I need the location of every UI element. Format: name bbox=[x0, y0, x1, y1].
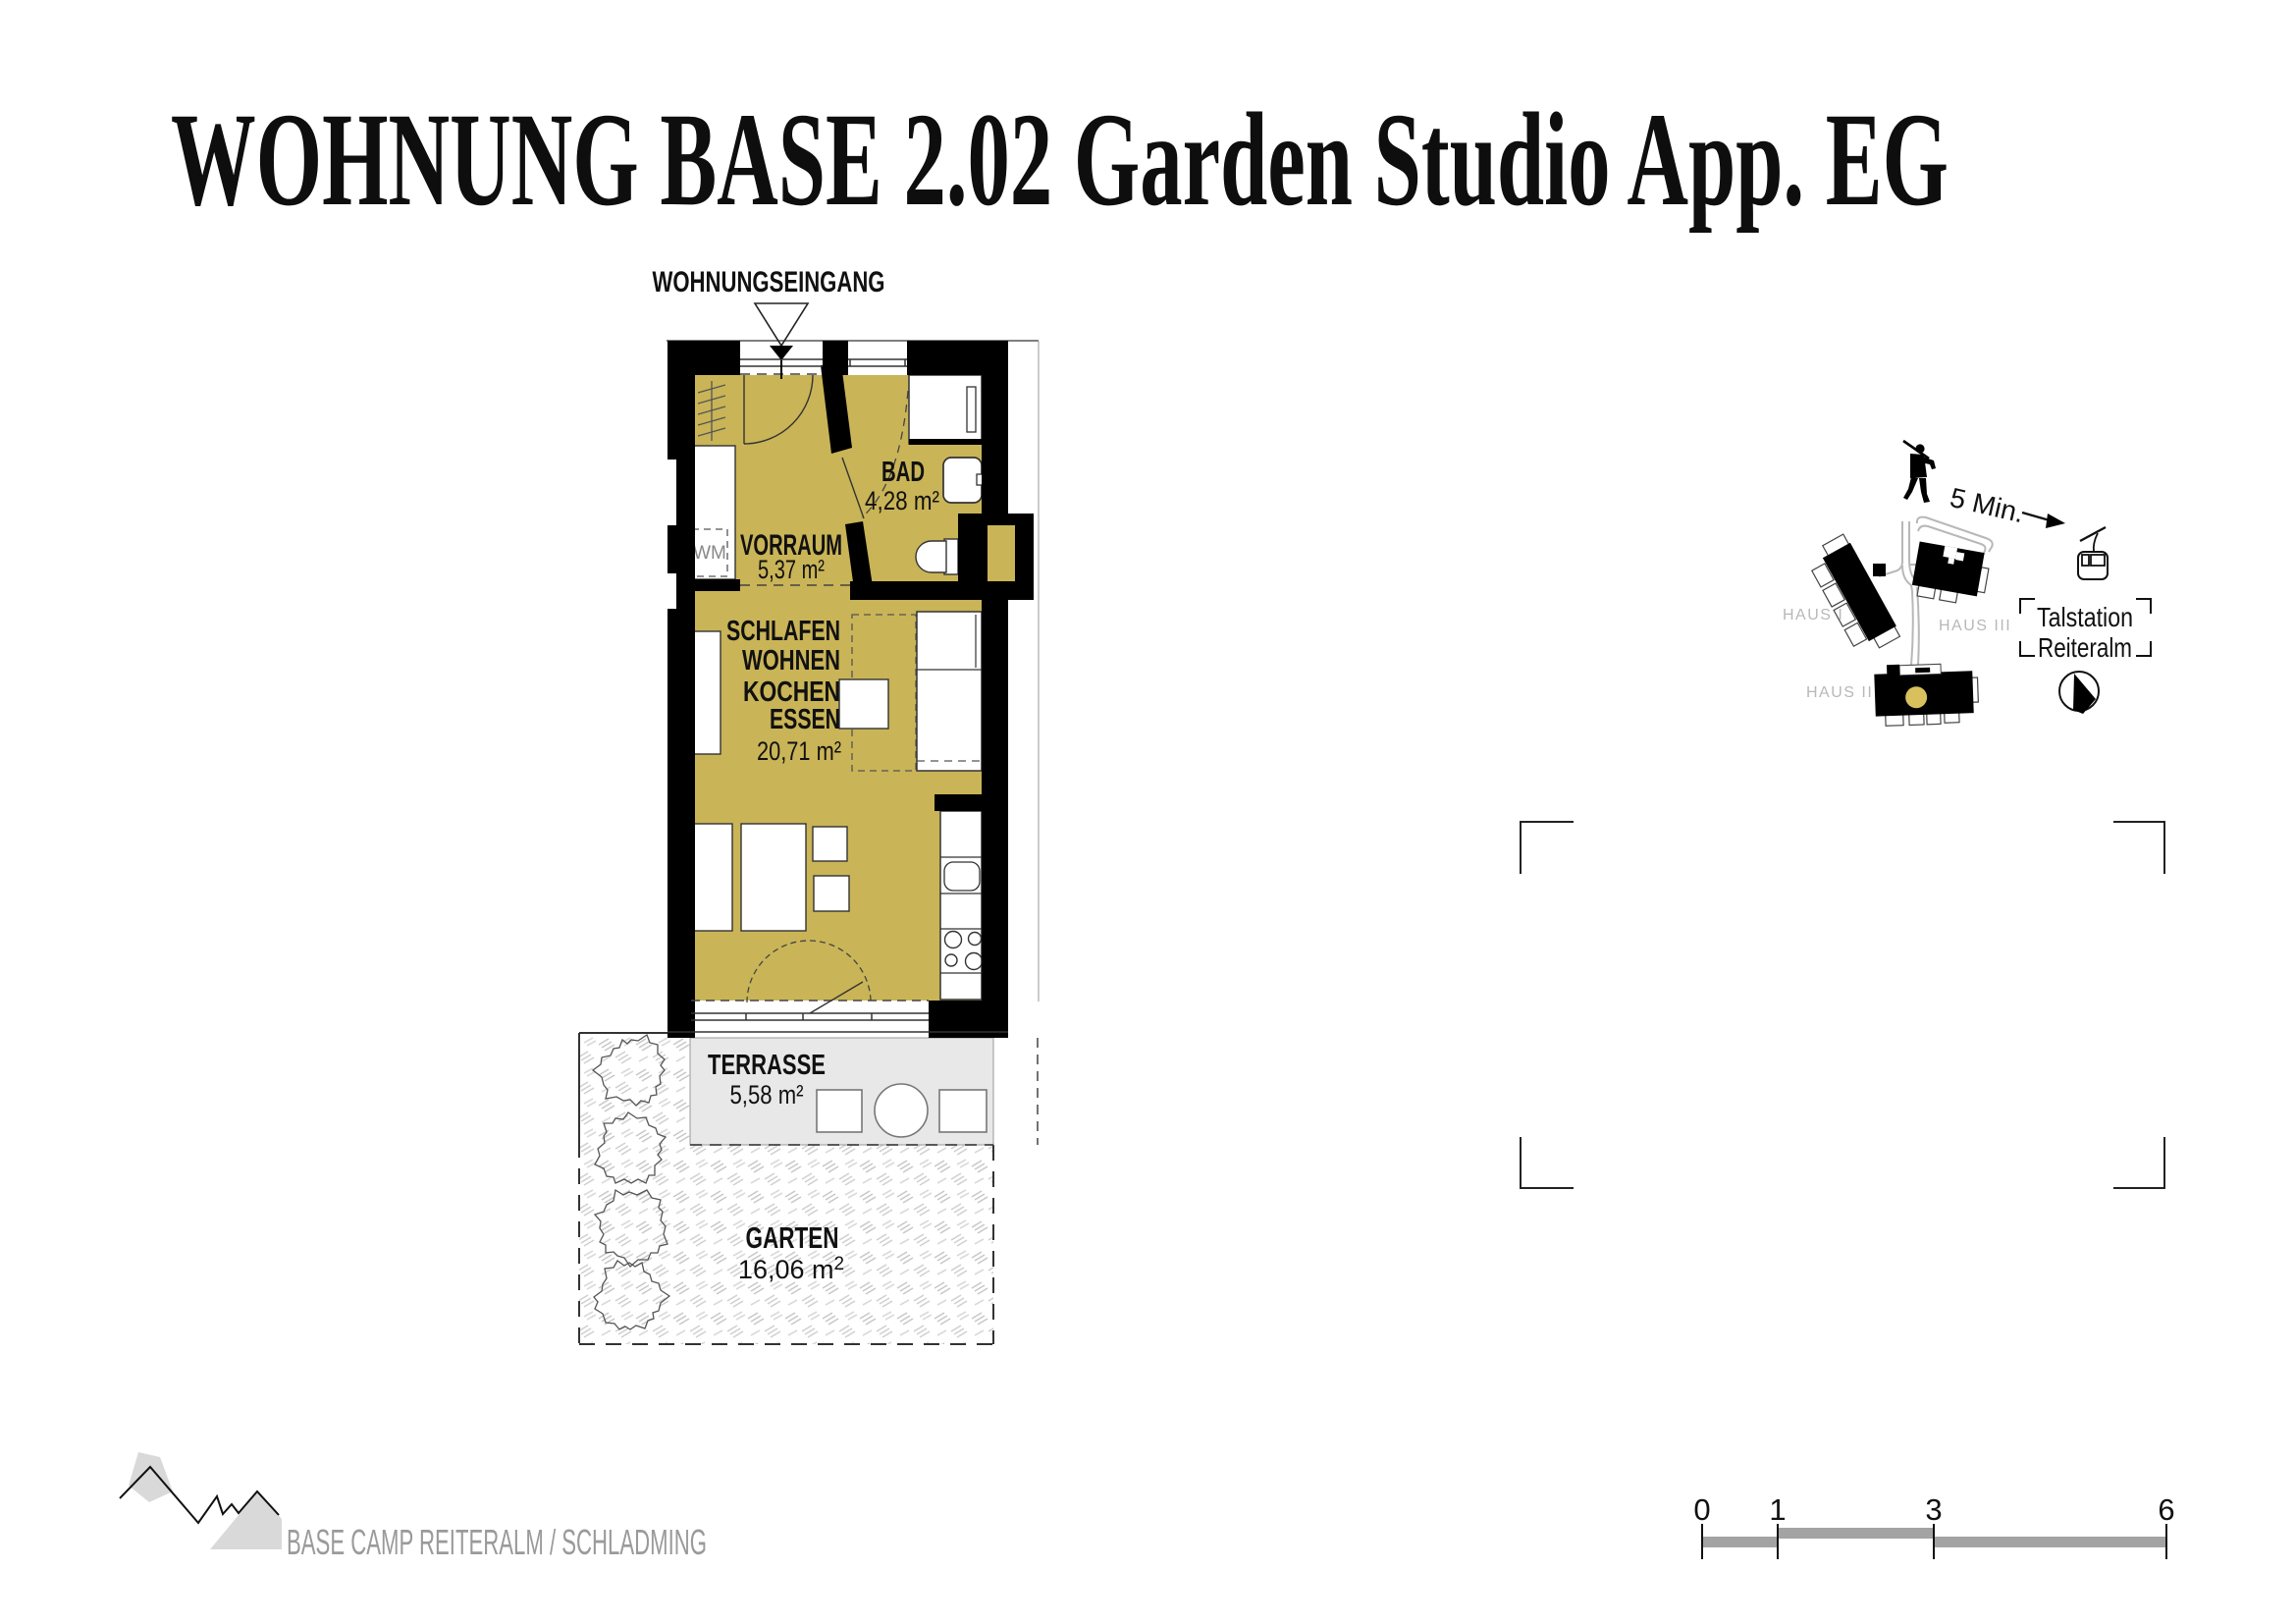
svg-text:20,71 m²: 20,71 m² bbox=[757, 736, 841, 766]
svg-text:Talstation: Talstation bbox=[2037, 602, 2133, 632]
svg-text:WOHNEN: WOHNEN bbox=[742, 645, 840, 677]
svg-text:SCHLAFEN: SCHLAFEN bbox=[726, 616, 840, 647]
svg-text:1: 1 bbox=[1769, 1492, 1786, 1527]
svg-text:5,58 m²: 5,58 m² bbox=[730, 1080, 804, 1110]
svg-text:BAD: BAD bbox=[881, 457, 925, 488]
svg-text:4,28 m²: 4,28 m² bbox=[865, 486, 939, 515]
svg-text:HAUS II: HAUS II bbox=[1806, 684, 1873, 701]
svg-text:3: 3 bbox=[1925, 1492, 1942, 1527]
svg-text:GARTEN: GARTEN bbox=[746, 1220, 839, 1255]
svg-text:TERRASSE: TERRASSE bbox=[708, 1050, 826, 1081]
svg-text:5,37 m²: 5,37 m² bbox=[758, 555, 825, 584]
svg-text:HAUS I: HAUS I bbox=[1783, 607, 1843, 623]
svg-text:6: 6 bbox=[2158, 1492, 2174, 1527]
svg-text:0: 0 bbox=[1693, 1492, 1710, 1527]
svg-text:HAUS III: HAUS III bbox=[1939, 618, 2011, 634]
svg-text:WOHNUNGSEINGANG: WOHNUNGSEINGANG bbox=[653, 266, 885, 298]
svg-text:Reiteralm: Reiteralm bbox=[2038, 632, 2132, 663]
svg-text:WM: WM bbox=[693, 543, 726, 564]
svg-text:WOHNUNG BASE 2.02 Garden Studi: WOHNUNG BASE 2.02 Garden Studio App. EG bbox=[171, 85, 1949, 234]
svg-text:BASE CAMP REITERALM / SCHLADMI: BASE CAMP REITERALM / SCHLADMING bbox=[287, 1522, 707, 1562]
svg-text:16,06 m2: 16,06 m2 bbox=[738, 1254, 844, 1284]
svg-text:ESSEN: ESSEN bbox=[770, 704, 840, 735]
